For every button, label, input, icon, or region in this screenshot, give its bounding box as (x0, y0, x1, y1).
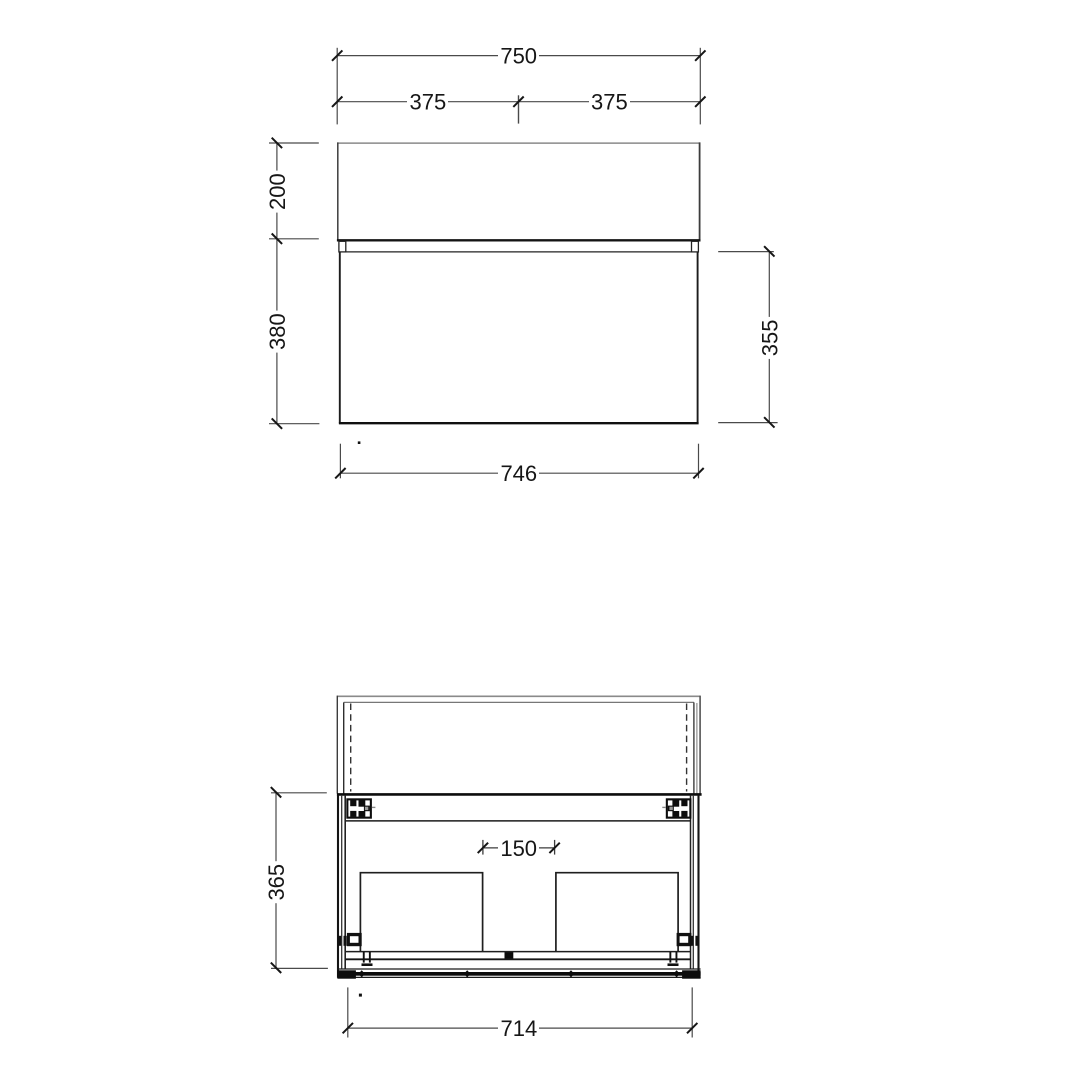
svg-text:200: 200 (265, 173, 290, 210)
svg-text:150: 150 (500, 836, 537, 861)
svg-text:750: 750 (500, 44, 537, 69)
svg-text:380: 380 (265, 313, 290, 350)
svg-text:714: 714 (501, 1016, 538, 1041)
svg-text:355: 355 (757, 320, 782, 357)
svg-text:375: 375 (410, 90, 447, 115)
svg-text:375: 375 (591, 90, 628, 115)
svg-text:746: 746 (500, 461, 537, 486)
svg-text:365: 365 (264, 864, 289, 901)
